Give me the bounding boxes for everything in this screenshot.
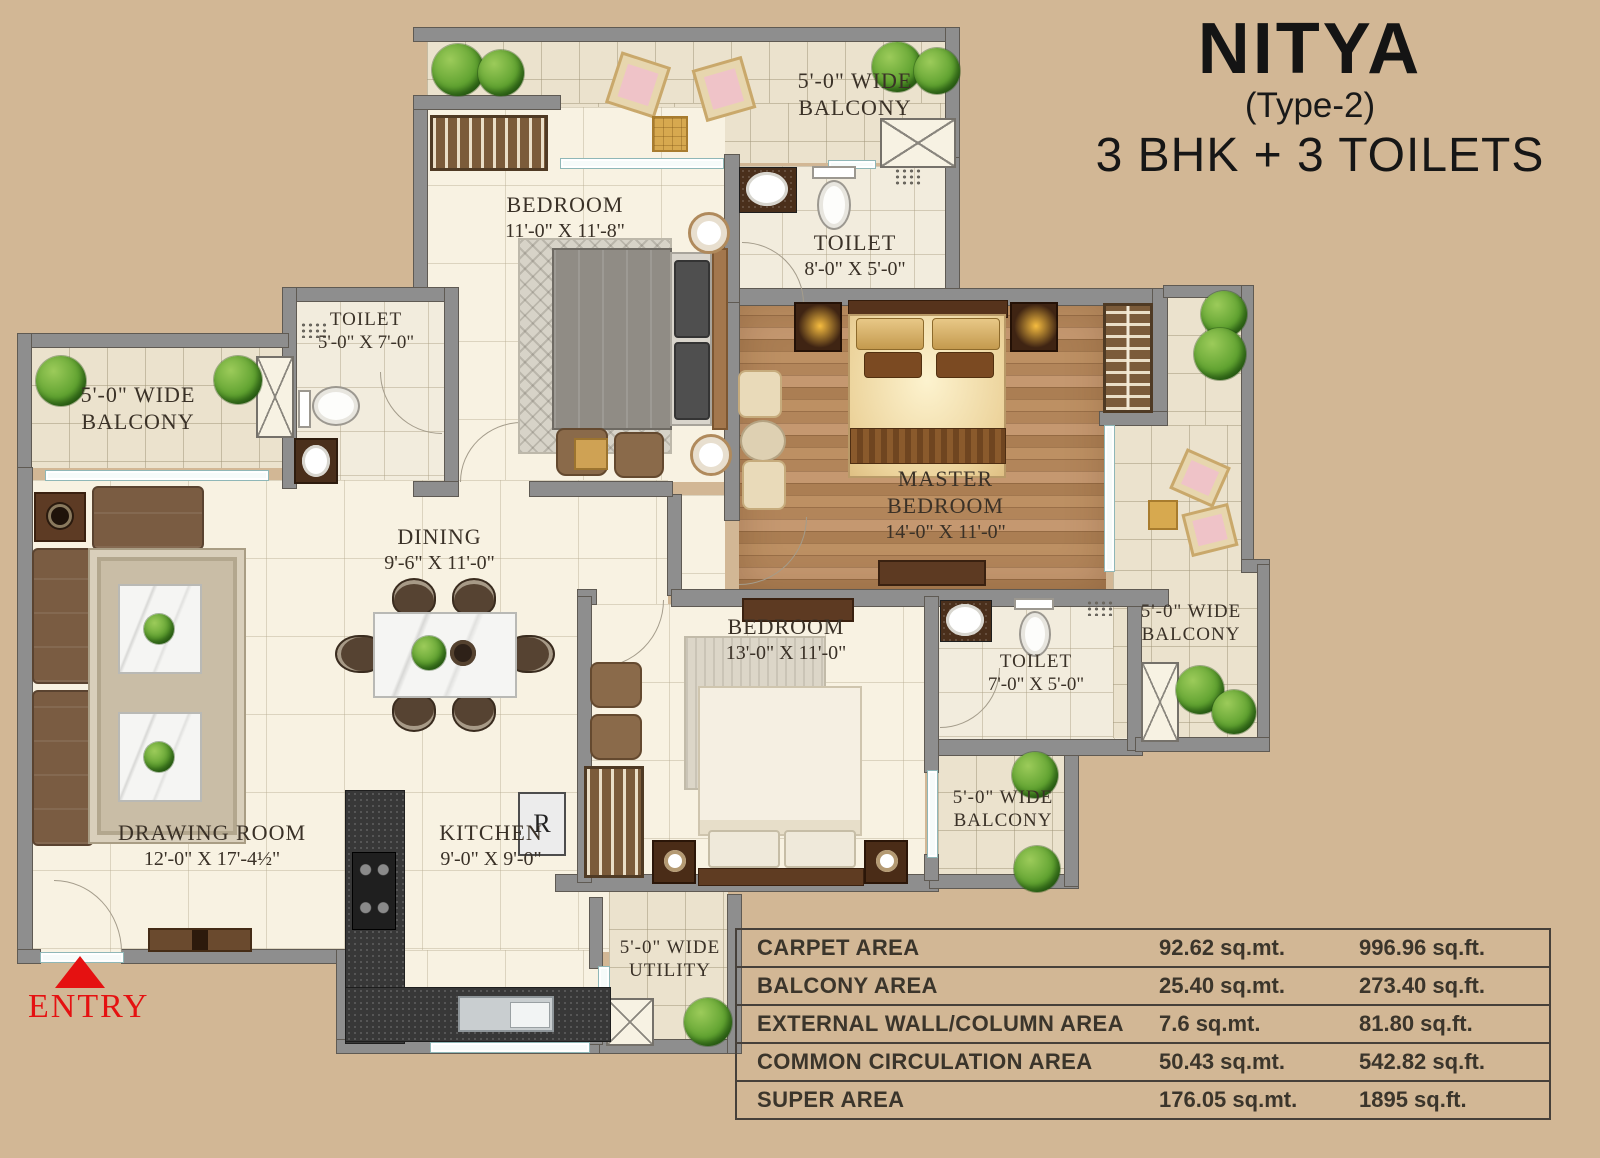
- wall: [1258, 565, 1269, 750]
- area-label: COMMON CIRCULATION AREA: [737, 1049, 1159, 1075]
- lamp-glow: [798, 304, 842, 348]
- toilet-left-label: TOILET 5'-0" X 7'-0": [290, 308, 442, 354]
- kitchen-label: KITCHEN 9'-0" X 9'-0": [396, 820, 586, 871]
- table-row: BALCONY AREA 25.40 sq.mt. 273.40 sq.ft.: [737, 968, 1549, 1006]
- wall: [530, 482, 672, 496]
- window: [560, 158, 724, 169]
- pillow: [674, 260, 710, 338]
- pillow: [856, 318, 924, 350]
- balcony-bottom-label: 5'-0" WIDE BALCONY: [928, 786, 1078, 832]
- wall: [668, 495, 681, 595]
- floor-plan-page: 5'-0" WIDE BALCONY BEDROOM 11'-0" X 11'-…: [0, 0, 1600, 1158]
- window: [1104, 425, 1115, 572]
- plan-title: NITYA: [1030, 8, 1590, 90]
- toilet-mid-label: TOILET 7'-0" X 5'-0": [956, 650, 1116, 696]
- side-table: [574, 438, 608, 470]
- wall: [283, 288, 458, 301]
- toilet-wc-bowl: [312, 386, 360, 426]
- area-sqmt: 92.62 sq.mt.: [1159, 935, 1359, 961]
- nightstand: [652, 840, 696, 884]
- duct-shaft: [606, 998, 654, 1046]
- plant: [432, 44, 484, 96]
- plant: [684, 998, 732, 1046]
- area-label: BALCONY AREA: [737, 973, 1159, 999]
- kitchen-sink: [458, 996, 554, 1032]
- wall: [1242, 286, 1253, 570]
- dining-label: DINING 9'-6" X 11'-0": [352, 524, 527, 575]
- duct-shaft: [256, 356, 294, 438]
- area-label: CARPET AREA: [737, 935, 1159, 961]
- shower-icon: [1086, 600, 1114, 616]
- bedside-table: [688, 212, 730, 254]
- bedroom-top-label: BEDROOM 11'-0" X 11'-8": [455, 192, 675, 243]
- bed-top: [552, 248, 728, 430]
- wall: [414, 96, 427, 298]
- wardrobe: [1103, 303, 1153, 413]
- plant: [214, 356, 262, 404]
- area-sqft: 81.80 sq.ft.: [1359, 1011, 1549, 1037]
- dining-chair: [392, 578, 436, 616]
- pillow: [932, 318, 1000, 350]
- wall: [414, 482, 458, 496]
- bed-mid: [698, 686, 862, 886]
- dresser: [878, 560, 986, 586]
- dining-chair: [392, 694, 436, 732]
- stove: [352, 852, 396, 930]
- sofa: [32, 548, 94, 684]
- wall: [590, 898, 602, 968]
- headboard: [698, 868, 864, 886]
- pillow: [674, 342, 710, 420]
- wall: [1153, 289, 1167, 425]
- pillow: [708, 830, 780, 868]
- table-row: COMMON CIRCULATION AREA 50.43 sq.mt. 542…: [737, 1044, 1549, 1082]
- area-sqmt: 176.05 sq.mt.: [1159, 1087, 1359, 1113]
- wardrobe: [430, 115, 548, 171]
- sink-basin: [510, 1002, 550, 1028]
- bedroom-mid-label: BEDROOM 13'-0" X 11'-0": [686, 614, 886, 665]
- table-plant: [144, 614, 174, 644]
- balcony-right-floor-mid: [1113, 425, 1242, 572]
- toilet-wc: [1014, 598, 1054, 610]
- pillow: [936, 352, 994, 378]
- dining-chair: [452, 578, 496, 616]
- plant: [1014, 846, 1060, 892]
- armchair: [590, 662, 642, 708]
- armchair: [738, 370, 782, 418]
- plan-type: (Type-2): [1030, 86, 1590, 126]
- area-sqft: 996.96 sq.ft.: [1359, 935, 1549, 961]
- balcony-top-label: 5'-0" WIDE BALCONY: [770, 68, 940, 122]
- armchair: [614, 432, 664, 478]
- lamp-glow: [1014, 304, 1058, 348]
- area-sqmt: 7.6 sq.mt.: [1159, 1011, 1359, 1037]
- area-sqft: 273.40 sq.ft.: [1359, 973, 1549, 999]
- bed-runner: [850, 428, 1006, 464]
- balcony-table: [1148, 500, 1178, 530]
- plan-config: 3 BHK + 3 TOILETS: [1044, 128, 1596, 183]
- wall: [18, 334, 288, 347]
- shower-icon: [894, 168, 922, 186]
- master-bedroom-label: MASTER BEDROOM 14'-0" X 11'-0": [848, 466, 1043, 544]
- area-table: CARPET AREA 92.62 sq.mt. 996.96 sq.ft. B…: [735, 928, 1551, 1120]
- foyer-floor: [681, 495, 725, 592]
- wall: [414, 28, 959, 41]
- wash-basin: [746, 172, 788, 206]
- area-label: EXTERNAL WALL/COLUMN AREA: [737, 1011, 1159, 1037]
- dining-chair: [452, 694, 496, 732]
- headboard: [712, 248, 728, 430]
- wall: [925, 597, 938, 772]
- utility-label: 5'-0" WIDE UTILITY: [608, 936, 732, 982]
- plant: [478, 50, 524, 96]
- area-sqft: 542.82 sq.ft.: [1359, 1049, 1549, 1075]
- lamp: [876, 850, 898, 872]
- tv-console: [148, 928, 252, 952]
- toilet-top-label: TOILET 8'-0" X 5'-0": [770, 230, 940, 281]
- wall: [1100, 412, 1167, 425]
- wall: [18, 334, 31, 480]
- wall: [18, 468, 32, 963]
- lamp: [664, 850, 686, 872]
- pillow: [784, 830, 856, 868]
- entry-arrow-icon: [55, 956, 105, 988]
- entry-label: ENTRY: [28, 988, 149, 1026]
- plant: [1194, 328, 1246, 380]
- sofa: [32, 690, 94, 846]
- balcony-right-label: 5'-0" WIDE BALCONY: [1116, 600, 1266, 646]
- decor-bowl: [48, 504, 72, 528]
- area-sqmt: 25.40 sq.mt.: [1159, 973, 1359, 999]
- serving-bowl: [450, 640, 476, 666]
- drawing-room-label: DRAWING ROOM 12'-0" X 17'-4½": [88, 820, 336, 871]
- balcony-table: [652, 116, 688, 152]
- wash-basin: [294, 438, 338, 484]
- window: [430, 1042, 590, 1053]
- bed-master: [848, 300, 1006, 478]
- armchair: [742, 460, 786, 510]
- area-label: SUPER AREA: [737, 1087, 1159, 1113]
- nightstand: [864, 840, 908, 884]
- table-row: CARPET AREA 92.62 sq.mt. 996.96 sq.ft.: [737, 930, 1549, 968]
- wall: [925, 855, 938, 880]
- area-sqmt: 50.43 sq.mt.: [1159, 1049, 1359, 1075]
- toilet-wc-bowl: [817, 180, 851, 230]
- wardrobe: [584, 766, 644, 878]
- area-sqft: 1895 sq.ft.: [1359, 1087, 1549, 1113]
- wall: [946, 158, 959, 305]
- duct-shaft: [880, 118, 956, 168]
- pillow: [864, 352, 922, 378]
- balcony-left-label: 5'-0" WIDE BALCONY: [58, 382, 218, 436]
- window: [45, 470, 269, 481]
- wall: [1164, 286, 1252, 297]
- bedside-table: [690, 434, 732, 476]
- bed-duvet: [698, 686, 862, 836]
- wall: [445, 288, 458, 488]
- armchair: [590, 714, 642, 760]
- loveseat: [92, 486, 204, 550]
- toilet-wc: [812, 166, 856, 179]
- wall: [414, 96, 560, 109]
- plant: [1212, 690, 1256, 734]
- wall: [18, 950, 40, 963]
- duct-shaft: [1141, 662, 1179, 742]
- bed-blanket: [552, 248, 672, 430]
- table-row: SUPER AREA 176.05 sq.mt. 1895 sq.ft.: [737, 1082, 1549, 1118]
- toilet-wc: [298, 390, 311, 428]
- wash-basin: [946, 604, 984, 636]
- table-plant: [412, 636, 446, 670]
- table-plant: [144, 742, 174, 772]
- table-row: EXTERNAL WALL/COLUMN AREA 7.6 sq.mt. 81.…: [737, 1006, 1549, 1044]
- round-table: [740, 420, 786, 462]
